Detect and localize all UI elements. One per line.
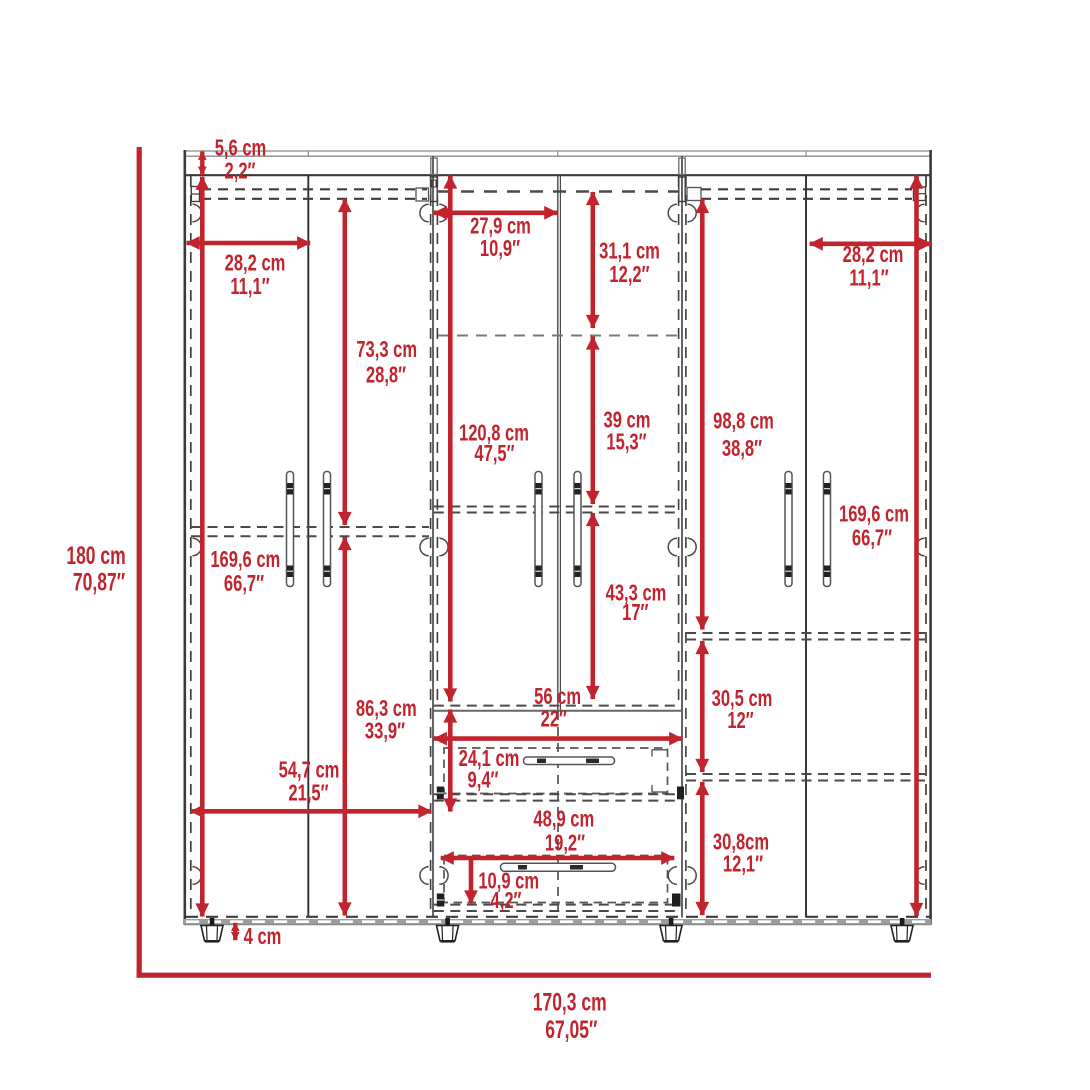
svg-text:86,3 cm: 86,3 cm [356,696,417,721]
svg-text:12,2″: 12,2″ [609,262,649,287]
svg-text:54,7 cm: 54,7 cm [279,758,340,783]
svg-text:28,2 cm: 28,2 cm [225,251,286,276]
svg-text:11,1″: 11,1″ [230,274,270,299]
svg-text:66,7″: 66,7″ [224,571,264,596]
svg-text:47,5″: 47,5″ [474,441,514,466]
svg-text:4,2″: 4,2″ [491,888,522,913]
svg-text:98,8 cm: 98,8 cm [713,409,774,434]
svg-text:10,9″: 10,9″ [480,236,520,261]
svg-text:66,7″: 66,7″ [852,526,892,551]
svg-text:70,87″: 70,87″ [73,567,125,596]
svg-text:169,6 cm: 169,6 cm [210,547,280,572]
svg-text:73,3 cm: 73,3 cm [356,337,417,362]
svg-text:169,6 cm: 169,6 cm [839,502,909,527]
svg-text:2,2″: 2,2″ [225,159,256,184]
svg-text:28,8″: 28,8″ [366,363,406,388]
svg-text:15,3″: 15,3″ [606,430,646,455]
svg-text:170,3 cm: 170,3 cm [533,987,607,1016]
svg-text:56 cm: 56 cm [534,684,581,709]
svg-text:19,2″: 19,2″ [545,831,585,856]
svg-text:38,8″: 38,8″ [722,436,762,461]
svg-text:31,1 cm: 31,1 cm [599,239,660,264]
svg-text:21,5″: 21,5″ [288,781,328,806]
svg-text:27,9 cm: 27,9 cm [470,214,531,239]
svg-text:180 cm: 180 cm [66,541,125,570]
svg-text:67,05″: 67,05″ [545,1015,597,1044]
svg-text:12″: 12″ [727,708,754,733]
svg-text:5,6 cm: 5,6 cm [215,136,267,161]
svg-text:9,4″: 9,4″ [468,768,499,793]
svg-text:33,9″: 33,9″ [365,719,405,744]
svg-text:28,2 cm: 28,2 cm [843,242,904,267]
svg-text:12,1″: 12,1″ [723,852,763,877]
svg-text:22″: 22″ [541,707,568,732]
svg-text:11,1″: 11,1″ [849,266,889,291]
svg-text:4 cm: 4 cm [244,924,282,949]
svg-text:17″: 17″ [622,600,649,625]
svg-text:48,9 cm: 48,9 cm [533,807,594,832]
